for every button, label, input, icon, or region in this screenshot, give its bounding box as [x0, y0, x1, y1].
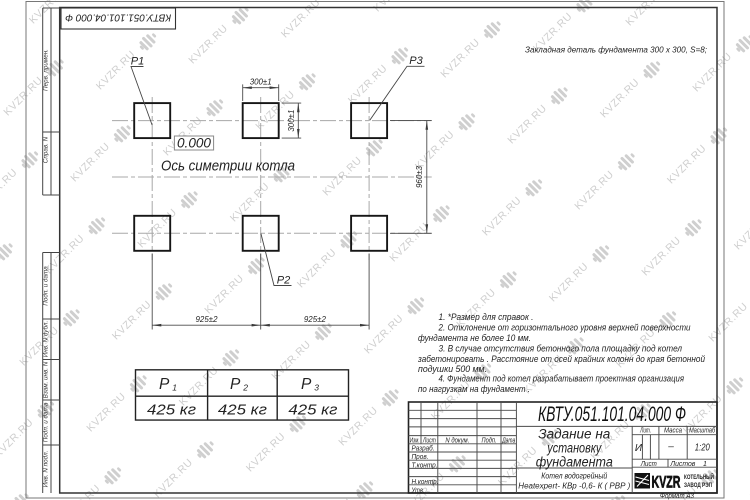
svg-text:960±3: 960±3	[415, 166, 424, 188]
svg-text:1: 1	[703, 461, 707, 468]
svg-text:KVZR.RU: KVZR.RU	[387, 220, 431, 264]
svg-text:Масштаб: Масштаб	[689, 427, 716, 435]
svg-text:KVZR.RU: KVZR.RU	[690, 50, 734, 94]
svg-text:KVZR.RU: KVZR.RU	[0, 416, 36, 460]
svg-text:KVZR.RU: KVZR.RU	[59, 482, 103, 500]
svg-text:Р2: Р2	[230, 376, 248, 393]
svg-text:Изм.: Изм.	[410, 437, 420, 444]
svg-text:KVZR.RU: KVZR.RU	[665, 142, 709, 186]
svg-text:Подп. и дата: Подп. и дата	[41, 402, 49, 442]
svg-text:КОТЕЛЬНЫЙ: КОТЕЛЬНЫЙ	[684, 473, 714, 481]
svg-text:Р1: Р1	[131, 55, 144, 67]
svg-text:–: –	[667, 442, 674, 453]
svg-text:4. Фундамент под котел разраб: 4. Фундамент под котел разрабатывает про…	[439, 374, 685, 384]
svg-text:Р3: Р3	[409, 55, 423, 67]
svg-text:Листов: Листов	[669, 461, 695, 468]
svg-text:Подп. и дата: Подп. и дата	[41, 266, 49, 306]
svg-text:Лит.: Лит.	[639, 428, 651, 435]
svg-text:установку: установку	[546, 441, 602, 456]
svg-text:Н.контр.: Н.контр.	[412, 479, 439, 486]
svg-text:2. Отклонение от горизонтальн: 2. Отклонение от горизонтального уровня …	[438, 323, 691, 333]
svg-text:KVZR.RU: KVZR.RU	[17, 324, 61, 368]
svg-text:KVZR.RU: KVZR.RU	[505, 102, 549, 146]
svg-text:KVZR.RU: KVZR.RU	[27, 0, 71, 26]
svg-text:Формат А3: Формат А3	[660, 493, 694, 500]
svg-text:KVZR.RU: KVZR.RU	[336, 404, 380, 448]
svg-text:KVZR.RU: KVZR.RU	[438, 36, 482, 80]
svg-text:KVZR.RU: KVZR.RU	[732, 208, 750, 252]
svg-text:KVZR.RU: KVZR.RU	[547, 260, 591, 304]
svg-text:КВТУ.051.101.04.000 Ф: КВТУ.051.101.04.000 Ф	[538, 403, 686, 426]
svg-text:KVZR.RU: KVZR.RU	[0, 166, 20, 210]
svg-text:KVZR.RU: KVZR.RU	[202, 272, 246, 316]
svg-text:Пров.: Пров.	[412, 454, 429, 461]
svg-text:Heatexpert- КВр -0,6- К ( РВР: Heatexpert- КВр -0,6- К ( РВР )	[518, 482, 630, 491]
svg-text:Р1: Р1	[159, 376, 177, 393]
svg-text:300±1: 300±1	[250, 77, 272, 86]
svg-text:Разраб.: Разраб.	[412, 445, 435, 453]
svg-text:KVZR.RU: KVZR.RU	[68, 140, 112, 184]
svg-text:KVZR.RU: KVZR.RU	[135, 206, 179, 250]
svg-text:Перв. примен.: Перв. примен.	[42, 49, 49, 91]
svg-text:Масса: Масса	[664, 428, 682, 435]
svg-text:KVZR.RU: KVZR.RU	[186, 22, 230, 66]
svg-text:Закладная деталь фундамента 3: Закладная деталь фундамента 300 х 300, S…	[525, 45, 708, 55]
svg-text:425 кг: 425 кг	[288, 403, 337, 419]
svg-text:925±2: 925±2	[304, 315, 326, 324]
svg-text:Т.контр.: Т.контр.	[412, 463, 438, 470]
svg-text:KVZR.RU: KVZR.RU	[480, 194, 524, 238]
svg-text:KVZR.RU: KVZR.RU	[413, 128, 457, 172]
svg-text:Задание на: Задание на	[538, 427, 610, 442]
svg-text:Р3: Р3	[301, 376, 319, 393]
svg-text:0.000: 0.000	[177, 136, 211, 151]
svg-text:Котел водогрейный: Котел водогрейный	[541, 472, 607, 481]
svg-text:ЗАВОД РЭП: ЗАВОД РЭП	[684, 483, 712, 489]
svg-text:Взам. инв. N: Взам. инв. N	[42, 361, 49, 398]
svg-text:KVZR.RU: KVZR.RU	[639, 234, 683, 278]
svg-text:КВТУ.051.101.04.000 Ф: КВТУ.051.101.04.000 Ф	[65, 12, 171, 24]
svg-text:KVZR.RU: KVZR.RU	[244, 430, 288, 474]
svg-text:KVZR.RU: KVZR.RU	[228, 180, 272, 224]
svg-text:425 кг: 425 кг	[147, 403, 196, 419]
svg-text:Инв. N подл.: Инв. N подл.	[41, 451, 49, 488]
svg-text:фундамента не более 10 мм.: фундамента не более 10 мм.	[418, 333, 531, 343]
svg-text:Ось симетрии котла: Ось симетрии котла	[161, 158, 295, 174]
svg-text:Справ. N: Справ. N	[42, 136, 49, 163]
svg-text:KVZR.RU: KVZR.RU	[84, 390, 128, 434]
svg-text:Лист: Лист	[640, 461, 657, 468]
svg-text:Р2: Р2	[277, 274, 290, 286]
svg-text:фундамента: фундамента	[536, 455, 613, 470]
svg-text:Дата: Дата	[501, 437, 515, 444]
svg-text:KVZR.RU: KVZR.RU	[320, 154, 364, 198]
svg-text:KVZR.RU: KVZR.RU	[572, 168, 616, 212]
svg-text:KVZR: KVZR	[652, 473, 681, 491]
svg-text:KVZR.RU: KVZR.RU	[43, 232, 87, 276]
svg-text:Подп.: Подп.	[482, 436, 497, 444]
svg-text:KVZR.RU: KVZR.RU	[1, 74, 45, 118]
svg-text:1. *Размер для справок .: 1. *Размер для справок .	[439, 312, 534, 322]
svg-text:И: И	[635, 443, 643, 454]
svg-text:925±2: 925±2	[196, 315, 218, 324]
svg-text:425 кг: 425 кг	[218, 403, 267, 419]
svg-text:KVZR.RU: KVZR.RU	[279, 0, 323, 40]
svg-text:KVZR.RU: KVZR.RU	[706, 300, 750, 344]
svg-text:KVZR.RU: KVZR.RU	[346, 62, 390, 106]
svg-text:KVZR.RU: KVZR.RU	[295, 246, 339, 290]
svg-text:Лист: Лист	[422, 437, 436, 444]
svg-text:300±1: 300±1	[287, 110, 296, 132]
svg-text:KVZR.RU: KVZR.RU	[623, 0, 667, 28]
svg-text:Инв. N дубл.: Инв. N дубл.	[41, 321, 49, 357]
svg-text:KVZR.RU: KVZR.RU	[110, 298, 154, 342]
svg-text:N докум.: N докум.	[445, 436, 469, 444]
svg-text:по нагрузкам на фундамент .: по нагрузкам на фундамент .	[418, 384, 530, 394]
svg-text:3. В случае отсутствия бетонн: 3. В случае отсутствия бетонного пола пл…	[439, 344, 683, 354]
svg-text:KVZR.RU: KVZR.RU	[598, 76, 642, 120]
svg-text:Утв.: Утв.	[411, 487, 425, 494]
svg-text:KVZR.RU: KVZR.RU	[362, 312, 406, 356]
svg-text:забетонировать . Расстояние от: забетонировать . Расстояние от осей край…	[417, 354, 705, 364]
svg-text:1:20: 1:20	[695, 442, 710, 454]
svg-text:подушки 500 мм.: подушки 500 мм.	[418, 364, 487, 374]
